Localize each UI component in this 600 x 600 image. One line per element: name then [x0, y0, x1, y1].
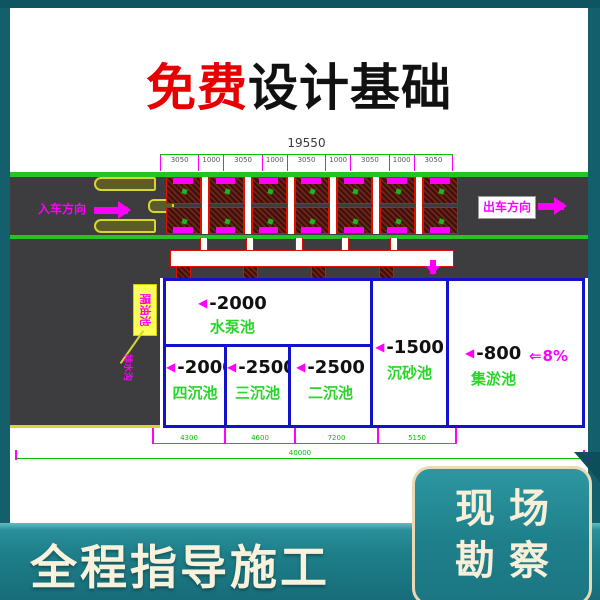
wash-bay	[423, 207, 458, 234]
callout-label: 隔油池	[137, 294, 153, 327]
page-title: 免费设计基础	[10, 48, 588, 120]
top-dim-segment: 3050	[160, 155, 199, 171]
top-dimension-total: 19550	[160, 136, 453, 150]
pool-four: -2000 四沉池	[163, 344, 227, 428]
pool-label: -2500 二沉池	[291, 357, 370, 403]
wash-bay-column	[209, 177, 244, 234]
pool-depth: -1500	[386, 337, 444, 358]
overall-dimension: 40000	[15, 444, 585, 459]
pool-label: -800 集淤池	[465, 343, 521, 389]
drain-stub	[390, 238, 398, 250]
walkway-lane	[329, 177, 337, 234]
callout-small-label: 排水沟	[122, 353, 135, 380]
walkway-lane	[201, 177, 209, 234]
depth-marker-icon	[227, 357, 238, 378]
traffic-island	[94, 177, 156, 191]
bottom-dim-segment: 7200	[294, 428, 377, 444]
wash-bay-column	[252, 177, 287, 234]
drain-stub	[246, 238, 254, 250]
wash-bay	[295, 207, 330, 234]
top-dim-segment: 1000	[199, 155, 224, 171]
pool-pump: -2000 水泵池	[163, 278, 373, 347]
wash-bay	[423, 177, 458, 204]
pool-name: 二沉池	[291, 382, 370, 403]
wash-bay-column	[295, 177, 330, 234]
bottom-dim-segment: 4600	[224, 428, 294, 444]
pool-depth: -2500	[307, 357, 365, 378]
top-dim-segment: 1000	[326, 155, 351, 171]
flow-arrow-icon	[430, 260, 436, 274]
top-dim-segment: 3050	[415, 155, 453, 171]
wash-bay-column	[423, 177, 458, 234]
bottom-dimension-chain: 4300460072005150	[152, 428, 457, 444]
wash-bay-grid	[166, 177, 458, 234]
depth-marker-icon	[166, 357, 177, 378]
promo-image: 免费设计基础 19550 305010003050100030501000305…	[0, 0, 600, 600]
pool-label: -2000 四沉池	[166, 357, 224, 403]
entry-direction-label: 入车方向	[38, 200, 86, 217]
title-rest: 设计基础	[248, 59, 452, 117]
bottom-dim-segment: 5150	[377, 428, 457, 444]
traffic-island	[94, 219, 156, 233]
depth-marker-icon	[296, 357, 307, 378]
drain-stub	[341, 238, 349, 250]
wash-bay	[166, 177, 201, 204]
pool-label: -2000 水泵池	[198, 293, 267, 337]
wash-bay	[380, 177, 415, 204]
depth-marker-icon	[198, 293, 209, 314]
site-badge: 现场 勘察	[412, 466, 592, 600]
callout-box: 隔油池	[133, 284, 157, 336]
walkway-lane	[244, 177, 252, 234]
title-highlight: 免费	[146, 59, 248, 117]
wash-bay	[252, 177, 287, 204]
pool-name: 水泵池	[198, 316, 267, 337]
wash-bay-column	[166, 177, 201, 234]
wash-bay	[337, 207, 372, 234]
walkway-lane	[415, 177, 423, 234]
pool-label: -1500 沉砂池	[373, 337, 446, 383]
wash-bay	[209, 177, 244, 204]
top-dim-segment: 1000	[263, 155, 288, 171]
drain-stub	[295, 238, 303, 250]
drain-stub	[200, 238, 208, 250]
pool-two: -2500 二沉池	[288, 344, 373, 428]
top-dimension-chain: 305010003050100030501000305010003050	[160, 154, 453, 173]
pool-three: -2500 三沉池	[224, 344, 291, 428]
pool-name: 三沉池	[227, 382, 288, 403]
callout-small: 排水沟	[120, 344, 136, 390]
footer-slogan: 全程指导施工	[30, 529, 330, 598]
badge-line-1: 现场	[415, 483, 589, 535]
pool-silt: -800 集淤池 8%	[446, 278, 585, 428]
wash-bay	[166, 207, 201, 234]
drawing-panel: 免费设计基础 19550 305010003050100030501000305…	[10, 8, 588, 523]
pool-label: -2500 三沉池	[227, 357, 288, 403]
slope-arrow-label: 8%	[529, 347, 568, 365]
wash-bay	[295, 177, 330, 204]
walkway-lane	[287, 177, 295, 234]
pool-sand: -1500 沉砂池	[370, 278, 449, 428]
top-dim-segment: 3050	[351, 155, 389, 171]
entry-arrow-icon	[94, 207, 128, 214]
walkway-lane	[372, 177, 380, 234]
wash-bay	[209, 207, 244, 234]
badge-line-2: 勘察	[415, 535, 589, 587]
top-dim-segment: 3050	[224, 155, 262, 171]
top-dim-segment: 1000	[390, 155, 415, 171]
exit-direction-label: 出车方向	[478, 196, 536, 219]
wash-bay-column	[337, 177, 372, 234]
depth-marker-icon	[465, 343, 476, 364]
bottom-dim-segment: 4300	[152, 428, 224, 444]
pool-name: 集淤池	[471, 368, 521, 389]
pool-depth: -2000	[209, 293, 267, 314]
pool-name: 四沉池	[166, 382, 224, 403]
wash-bay	[337, 177, 372, 204]
drain-channel	[170, 250, 454, 267]
top-border-strip	[0, 0, 600, 8]
pool-name: 沉砂池	[373, 362, 446, 383]
top-dim-segment: 3050	[288, 155, 326, 171]
wash-bay	[380, 207, 415, 234]
pool-depth: -800	[476, 343, 521, 364]
depth-marker-icon	[375, 337, 386, 358]
exit-arrow-icon	[538, 203, 564, 210]
wash-bay-column	[380, 177, 415, 234]
wash-bay	[252, 207, 287, 234]
